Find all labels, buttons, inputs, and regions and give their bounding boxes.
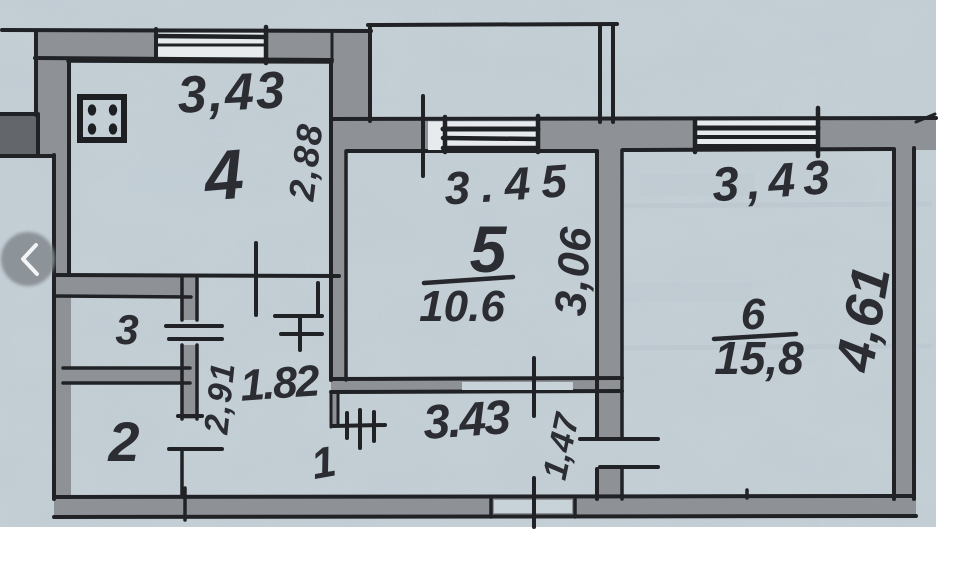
svg-text:3,06: 3,06 [546,225,601,318]
svg-text:3.45: 3.45 [442,153,579,214]
svg-text:2: 2 [107,410,139,473]
svg-text:3.43: 3.43 [421,391,512,450]
svg-text:5: 5 [470,212,508,286]
svg-text:1.82: 1.82 [239,356,322,410]
svg-text:15,8: 15,8 [714,332,804,384]
svg-text:10.6: 10.6 [419,282,505,331]
svg-text:3: 3 [115,306,138,353]
svg-text:3,43: 3,43 [176,61,288,125]
svg-text:4: 4 [199,135,247,216]
svg-text:2,91: 2,91 [197,360,242,437]
svg-text:3,43: 3,43 [711,151,840,213]
